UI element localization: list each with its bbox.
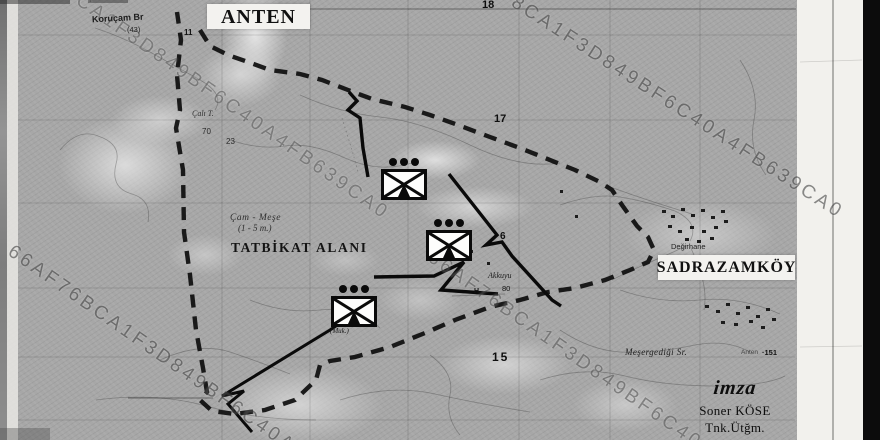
training-area-label: TATBİKAT ALANI: [231, 241, 368, 255]
cali-hill-label: Çalı T.: [192, 110, 214, 118]
akkuyu-label: Akkuyu: [488, 272, 512, 280]
spot-height-151: ·151: [762, 349, 777, 357]
spot-height-11: 11: [184, 29, 192, 37]
signature-name: Soner KÖSE: [685, 403, 785, 419]
infantry-unit-symbol-1: [381, 158, 427, 200]
signature-heading: imza: [684, 377, 786, 400]
scanned-map-document: CA1F3D849BF6C40A4FB639CA0 8CA1F3D849BF6C…: [0, 0, 880, 440]
vegetation-note-line2: (1 - 5 m.): [238, 224, 272, 233]
muk-label: (Muk.): [330, 328, 349, 335]
spot-height-23: 23: [226, 138, 235, 146]
scan-right-margin: [797, 0, 863, 440]
wedge-icon: [398, 184, 410, 197]
signature-rank: Tnk.Ütğm.: [685, 420, 785, 436]
mesergedigi-ridge-label: Meşergediği Sr.: [625, 348, 687, 357]
platoon-dots-icon: [381, 158, 427, 168]
anten-small-label: Anten: [741, 350, 758, 357]
infantry-crossed-box-icon: [426, 230, 472, 261]
infantry-crossed-box-icon: [331, 296, 377, 327]
grid-number-17: 17: [494, 114, 506, 125]
scan-right-black-edge: [863, 0, 880, 440]
sadrazamkoy-label: SADRAZAMKÖY: [658, 255, 795, 280]
infantry-unit-symbol-2: [426, 219, 472, 261]
platoon-dots-icon: [331, 285, 377, 295]
spot-height-70: 70: [202, 128, 211, 136]
grid-number-15: 15: [492, 351, 509, 363]
degirhane-hamlet-label: Değirhane: [671, 243, 706, 251]
wedge-icon: [348, 311, 360, 324]
infantry-crossed-box-icon: [381, 169, 427, 200]
anten-area-label: ANTEN: [207, 4, 310, 29]
grid-number-18: 18: [482, 0, 494, 11]
boundary-number-6: 6: [500, 232, 506, 242]
scan-left-white-strip: [7, 0, 18, 440]
map-canvas: [0, 0, 797, 440]
wedge-icon: [443, 245, 455, 258]
infantry-unit-symbol-3: [331, 285, 377, 327]
platoon-dots-icon: [426, 219, 472, 229]
scan-left-torn-edge: [0, 0, 7, 440]
h-mark-label: H: [474, 288, 479, 295]
spot-height-80: 80: [502, 285, 510, 293]
signature-block: imza Soner KÖSE Tnk.Ütğm.: [685, 377, 785, 436]
korucam-elevation-label: (43): [127, 26, 140, 34]
